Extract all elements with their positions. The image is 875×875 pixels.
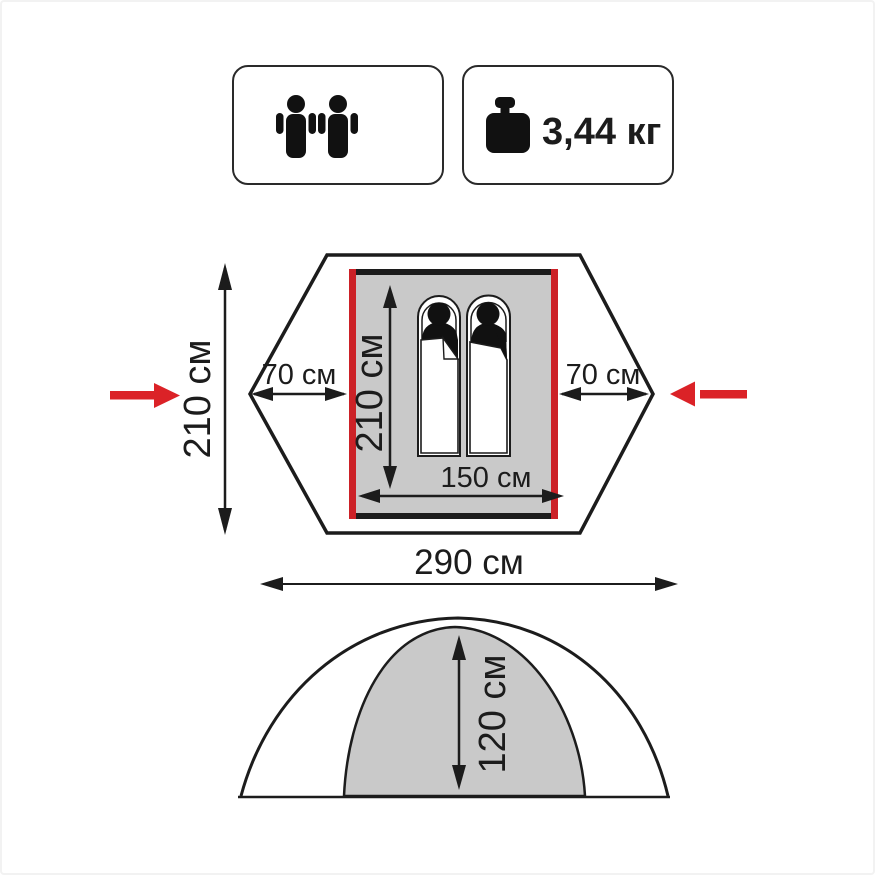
right-vestibule-label: 70 см xyxy=(566,359,641,391)
sleeping-bag-1 xyxy=(418,296,460,456)
dim-outer-height xyxy=(218,263,232,535)
entrance-arrow-left-icon xyxy=(110,383,180,408)
side-profile: 120 см xyxy=(238,618,670,797)
entrance-arrow-right-icon xyxy=(670,382,747,407)
inner-length-label: 210 см xyxy=(349,333,391,452)
inner-width-label: 150 см xyxy=(441,462,532,494)
total-width-label: 290 см xyxy=(414,543,524,582)
sleeping-bag-2 xyxy=(467,296,510,457)
dome-height-label: 120 см xyxy=(472,654,514,773)
left-vestibule-label: 70 см xyxy=(262,359,337,391)
inner-wall-top xyxy=(356,269,551,275)
frame-pole-right xyxy=(551,269,558,519)
inner-wall-bottom xyxy=(356,513,551,519)
tent-spec-diagram: 3,44 кг xyxy=(0,0,875,875)
floor-plan: 210 см 70 см 70 см 210 см xyxy=(110,255,747,591)
outer-height-label: 210 см xyxy=(177,339,219,458)
dimension-diagram: 210 см 70 см 70 см 210 см xyxy=(2,2,875,875)
